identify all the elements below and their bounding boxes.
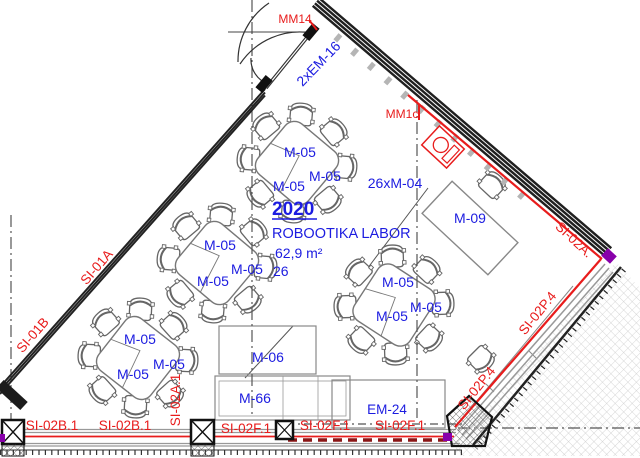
table-m05-label: M-05 [197,273,229,289]
cabinet-m66 [215,376,350,420]
table-cluster-bottom-right [309,220,479,390]
wall-tag-si02b1-b: SI-02B.1 [99,418,152,433]
room-area-label: 62,9 m² [275,245,323,261]
table-m05-label: M-05 [376,308,408,324]
equipment-label: EM-24 [367,402,407,417]
post-left [2,420,24,456]
room-number-label: 2020 [272,199,314,220]
table-m05-label: M-05 [117,366,149,382]
table-m05-label: M-05 [204,237,236,253]
wall-tag-si02f1-a: SI-02F.1 [221,421,271,436]
table-m05-label: M-05 [124,331,156,347]
wall-tag-si02f1-c: SI-02F.1 [375,418,425,433]
table-m05-label: M-05 [284,144,316,160]
mm14-label: MM14 [278,12,312,26]
chairs-total-label: 26xM-04 [368,175,423,191]
floor-plan: 2020 ROBOOTIKA LABOR 62,9 m² 26 M-05 M-0… [0,0,640,458]
table-m05-label: M-05 [309,168,341,184]
table-m05-label: M-05 [153,356,185,372]
wall-tag-si02f1-b: SI-02F.1 [300,418,350,433]
cabinet-label: M-66 [239,390,271,406]
floor-plan-drawing: 2020 ROBOOTIKA LABOR 62,9 m² 26 M-05 M-0… [0,0,640,458]
wall-tag-si02a1-vertical: SI-02A.1 [168,374,183,427]
post-small [276,421,293,439]
table-m05-label: M-05 [273,178,305,194]
room-name-label: ROBOOTIKA LABOR [272,226,411,242]
board-label: M-06 [252,349,284,365]
mm1c-label: MM1c [386,107,419,121]
post-mid [191,420,214,456]
table-m05-label: M-05 [410,299,442,315]
table-m05-label: M-05 [231,261,263,277]
wall-tag-si02b1-a: SI-02B.1 [26,418,79,433]
table-m05-label: M-05 [382,274,414,290]
table-cluster-top [210,76,383,249]
teacher-desk-label: M-09 [454,210,486,226]
room-capacity-label: 26 [273,263,289,279]
